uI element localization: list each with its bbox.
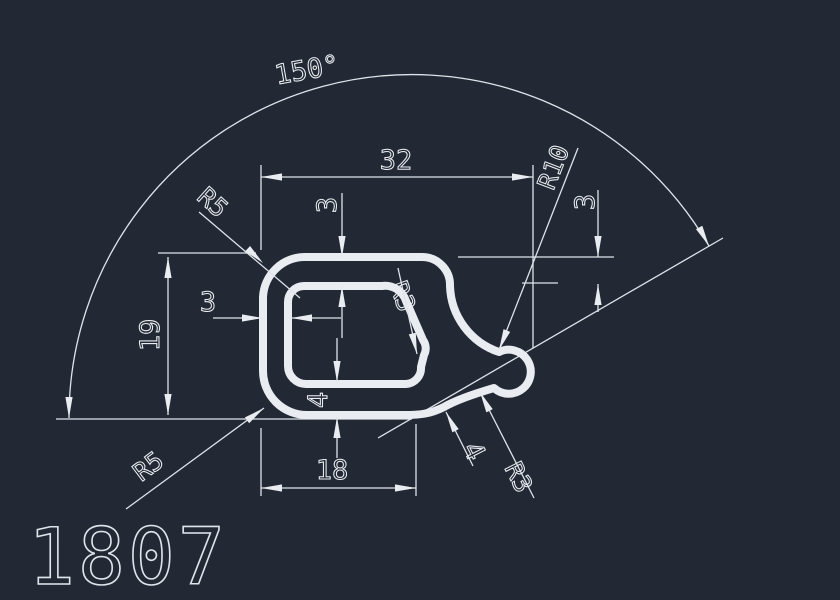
profile-outer-contour [263, 257, 531, 415]
cad-drawing: 150° 32 19 18 3 [0, 0, 840, 600]
dim-arrow [261, 173, 282, 180]
dim-arrow [594, 284, 601, 305]
leader-arrow [245, 246, 265, 266]
cad-drawing-canvas: 150° 32 19 18 3 [0, 0, 840, 600]
dim-value-wall-bottom: 4 [303, 392, 334, 408]
dimension-wall-left-3: 3 [200, 287, 341, 322]
dim-arrow [261, 484, 282, 491]
radius-leader-r5-bottom: R5 [126, 405, 266, 509]
angle-reference-line-slanted [378, 238, 723, 438]
dimension-wall-bottom-4: 4 [303, 338, 341, 458]
dim-value-wall-top: 3 [312, 197, 343, 213]
dimension-drop-right-3: 3 [458, 190, 614, 312]
radius-label-r10: R10 [532, 141, 575, 194]
radius-leader-r10: R10 [496, 141, 578, 351]
radius-label-r5-top: R5 [192, 182, 234, 224]
dim-arrow [291, 314, 312, 321]
dim-arrow [333, 417, 340, 438]
dim-arrow [164, 257, 171, 278]
dim-value-32: 32 [380, 145, 413, 176]
dim-arrow [512, 173, 533, 180]
dimension-wall-top-3: 3 [312, 193, 346, 338]
angle-arrow-right [696, 226, 712, 248]
angle-arrow-left [65, 397, 72, 418]
dim-value-19: 19 [135, 319, 166, 352]
dim-value-drop-right: 3 [570, 194, 601, 210]
dim-value-18: 18 [316, 455, 349, 486]
angle-arc [69, 75, 709, 418]
angular-dimension-150: 150° [56, 50, 723, 438]
dim-arrow [395, 484, 416, 491]
radius-label-r5-bottom: R5 [128, 446, 169, 487]
radius-leader-r5-top: R5 [192, 182, 300, 298]
dimension-height-19: 19 [135, 253, 256, 415]
dim-arrow [443, 410, 459, 432]
angle-value-label: 150° [272, 50, 341, 92]
leader-arrow [245, 405, 266, 423]
radius-label-r3-tail: R3 [499, 457, 539, 497]
profile-geometry [263, 257, 531, 415]
radius-leader-r3-inner: R3 [384, 268, 422, 355]
leader-line [199, 212, 300, 298]
part-number-label: 1807 [28, 513, 228, 600]
dim-value-wall-left: 3 [200, 287, 216, 318]
dim-arrow [594, 236, 601, 257]
dimension-tail-thickness-4: 4 [443, 410, 491, 466]
dim-arrow [164, 394, 171, 415]
dim-arrow [333, 361, 340, 382]
